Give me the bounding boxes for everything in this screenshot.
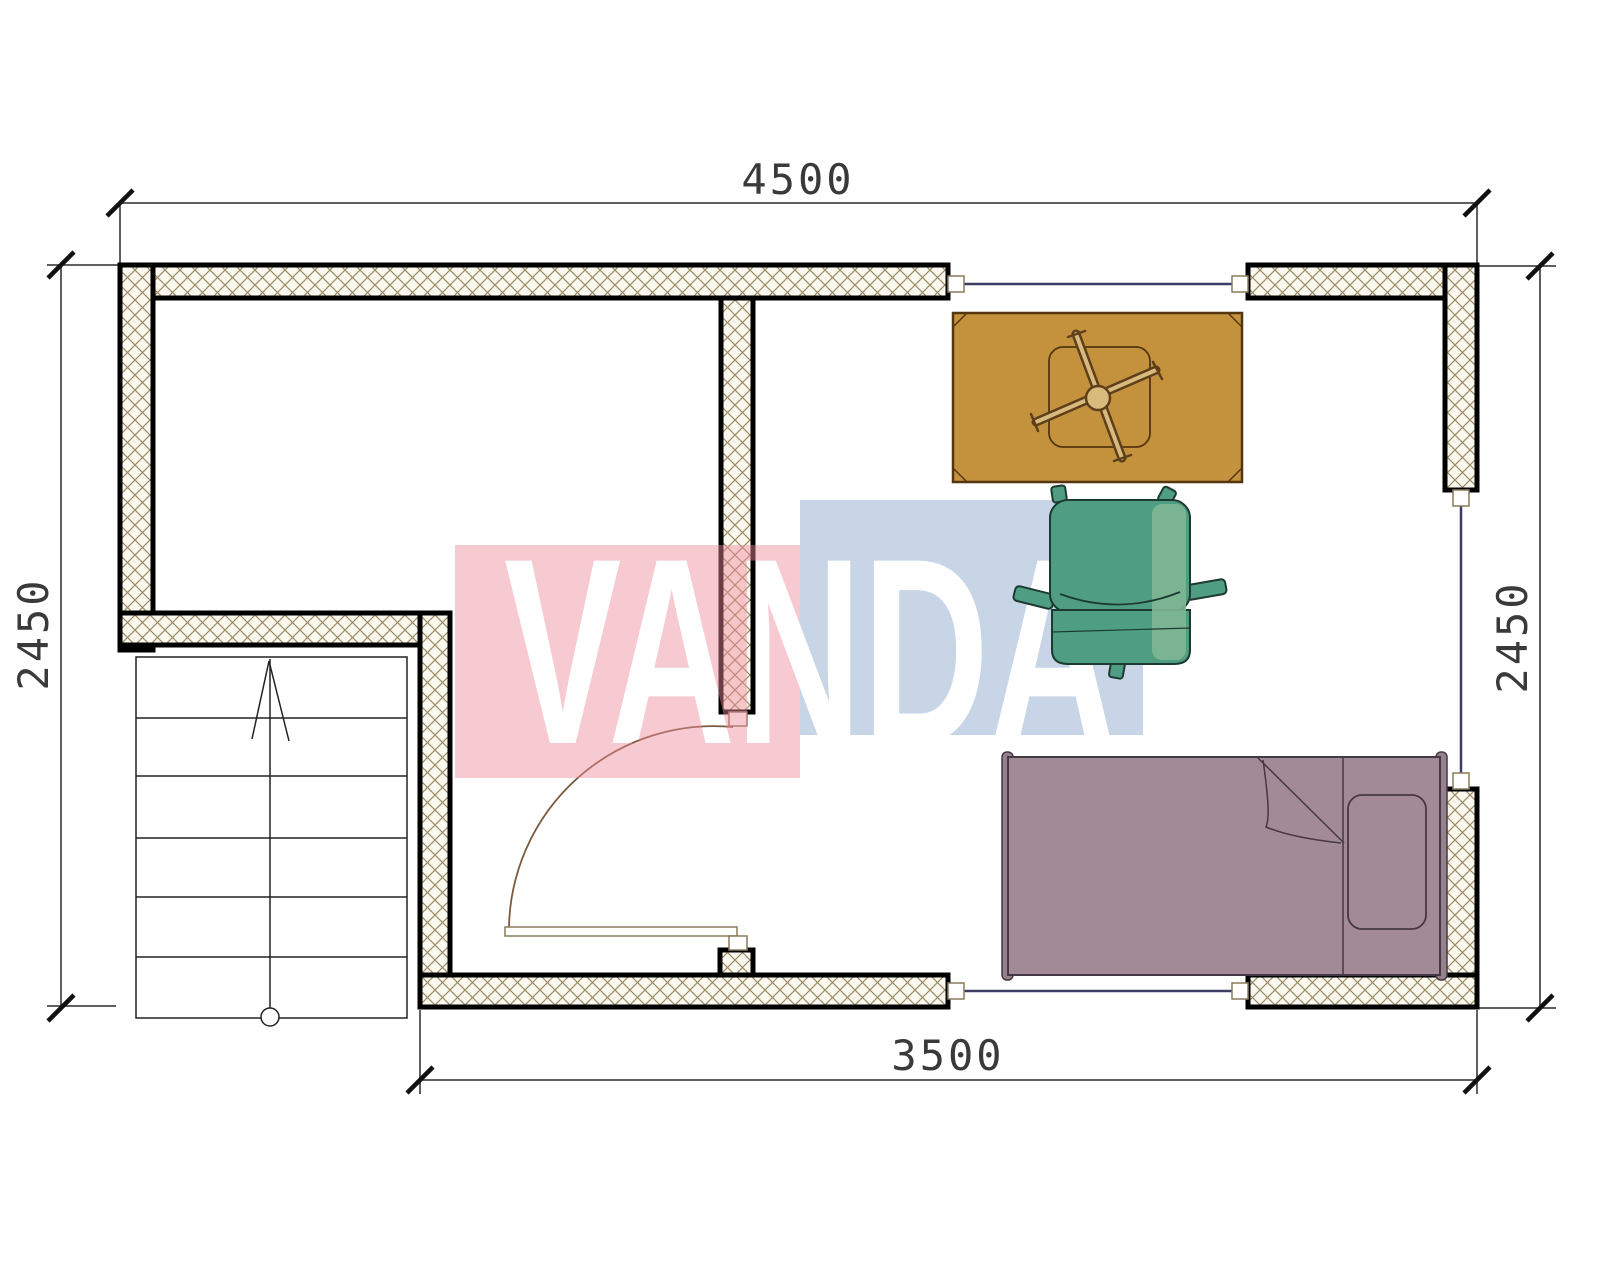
armchair-highlight xyxy=(1152,504,1186,660)
wall-segment-right-upper xyxy=(1445,265,1477,490)
wall-segment-room-bottom xyxy=(120,613,450,645)
door-frame-bottom xyxy=(729,936,747,950)
wall-segment-left xyxy=(120,265,153,650)
desk xyxy=(953,313,1242,482)
wall-segment-hall-west xyxy=(420,613,450,1007)
window-top xyxy=(948,276,1248,292)
bed xyxy=(1002,752,1447,980)
door-leaf xyxy=(505,927,737,936)
dim-left-label: 2450 xyxy=(9,577,58,690)
floor-plan-canvas: VANDA xyxy=(0,0,1600,1280)
watermark-red-block xyxy=(455,545,800,778)
wall-segment-hall-bottom xyxy=(420,975,948,1007)
dim-top-label: 4500 xyxy=(741,155,854,204)
dim-top xyxy=(120,203,1477,266)
desk-cross-hub xyxy=(1086,386,1110,410)
window-right xyxy=(1453,490,1469,789)
window-jamb xyxy=(1232,983,1248,999)
floor-plan-page: VANDA xyxy=(0,0,1600,1280)
window-bottom xyxy=(948,983,1248,999)
stair-start-circle xyxy=(261,1008,279,1026)
window-jamb xyxy=(1453,773,1469,789)
staircase xyxy=(136,657,407,1026)
bed-pillow xyxy=(1348,795,1426,929)
window-jamb xyxy=(948,983,964,999)
window-jamb xyxy=(1232,276,1248,292)
armchair-armrest-right xyxy=(1185,579,1227,601)
window-jamb xyxy=(1453,490,1469,506)
window-jamb xyxy=(948,276,964,292)
watermark xyxy=(455,500,1143,778)
dim-right-label: 2450 xyxy=(1488,580,1537,693)
wall-segment-top-left xyxy=(120,265,948,298)
dim-bottom-label: 3500 xyxy=(891,1031,1004,1080)
